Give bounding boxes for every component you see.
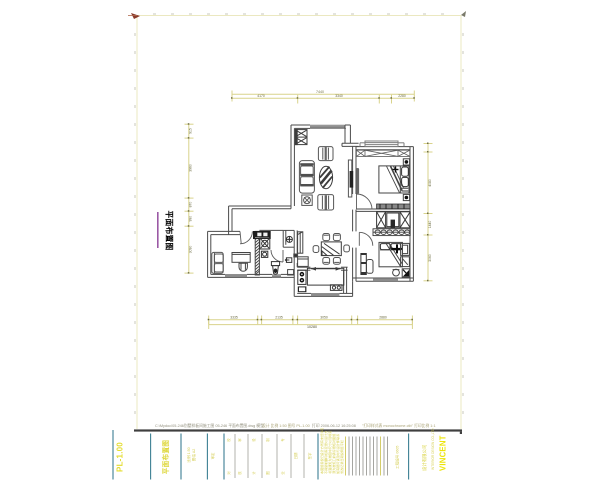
svg-text:修改记录日期说明签字栏: 修改记录日期说明签字栏 (339, 440, 344, 474)
svg-text:2880: 2880 (379, 315, 387, 319)
svg-text:工程编号 0605: 工程编号 0605 (395, 446, 400, 469)
svg-text:INTERIOR DESIGN CO.,LTD: INTERIOR DESIGN CO.,LTD (431, 428, 435, 470)
svg-text:3060: 3060 (428, 254, 432, 262)
svg-text:4080: 4080 (428, 179, 432, 187)
svg-text:4170: 4170 (257, 94, 265, 98)
svg-text:图幅 A2: 图幅 A2 (191, 449, 196, 462)
svg-text:设计有限公司: 设计有限公司 (421, 445, 428, 471)
svg-text:990: 990 (189, 216, 193, 222)
svg-text:审定: 审定 (210, 452, 215, 459)
svg-text:3960: 3960 (189, 164, 193, 172)
svg-text:870: 870 (189, 202, 193, 208)
svg-text:3050: 3050 (320, 315, 328, 319)
svg-text:"打印样式表 monochrome.ctb" 打印比例 1:: "打印样式表 monochrome.ctb" 打印比例 1:1 (362, 423, 436, 428)
svg-text:7440: 7440 (316, 90, 324, 94)
svg-text:2135: 2135 (275, 315, 283, 319)
svg-text:3090: 3090 (189, 246, 193, 254)
svg-text:平面布置图: 平面布置图 (161, 440, 170, 475)
svg-text:3340: 3340 (335, 94, 343, 98)
svg-text:3335: 3335 (230, 315, 238, 319)
svg-text:设计 比例 1:50 图号 PL-1.00: 设计 比例 1:50 图号 PL-1.00 (262, 423, 310, 428)
svg-text:签字: 签字 (307, 452, 312, 459)
svg-text:打印 2006-06-12 16:25:08: 打印 2006-06-12 16:25:08 (312, 423, 356, 428)
svg-text:915: 915 (189, 128, 193, 134)
svg-text:日期: 日期 (293, 452, 298, 459)
svg-text:1440: 1440 (428, 221, 432, 229)
svg-text:10280: 10280 (307, 325, 317, 329)
svg-text:2280: 2280 (398, 94, 406, 98)
svg-text:VINCENT: VINCENT (439, 435, 448, 471)
svg-text:比例 1:50: 比例 1:50 (186, 447, 191, 462)
svg-text:C:\Mydoc\05-246别墅样板间施工图 05-24: C:\Mydoc\05-246别墅样板间施工图 05-246 平面布置图.dwg… (155, 423, 264, 428)
svg-text:PL-1.00: PL-1.00 (116, 442, 125, 472)
svg-text:平面布置图: 平面布置图 (165, 211, 175, 251)
